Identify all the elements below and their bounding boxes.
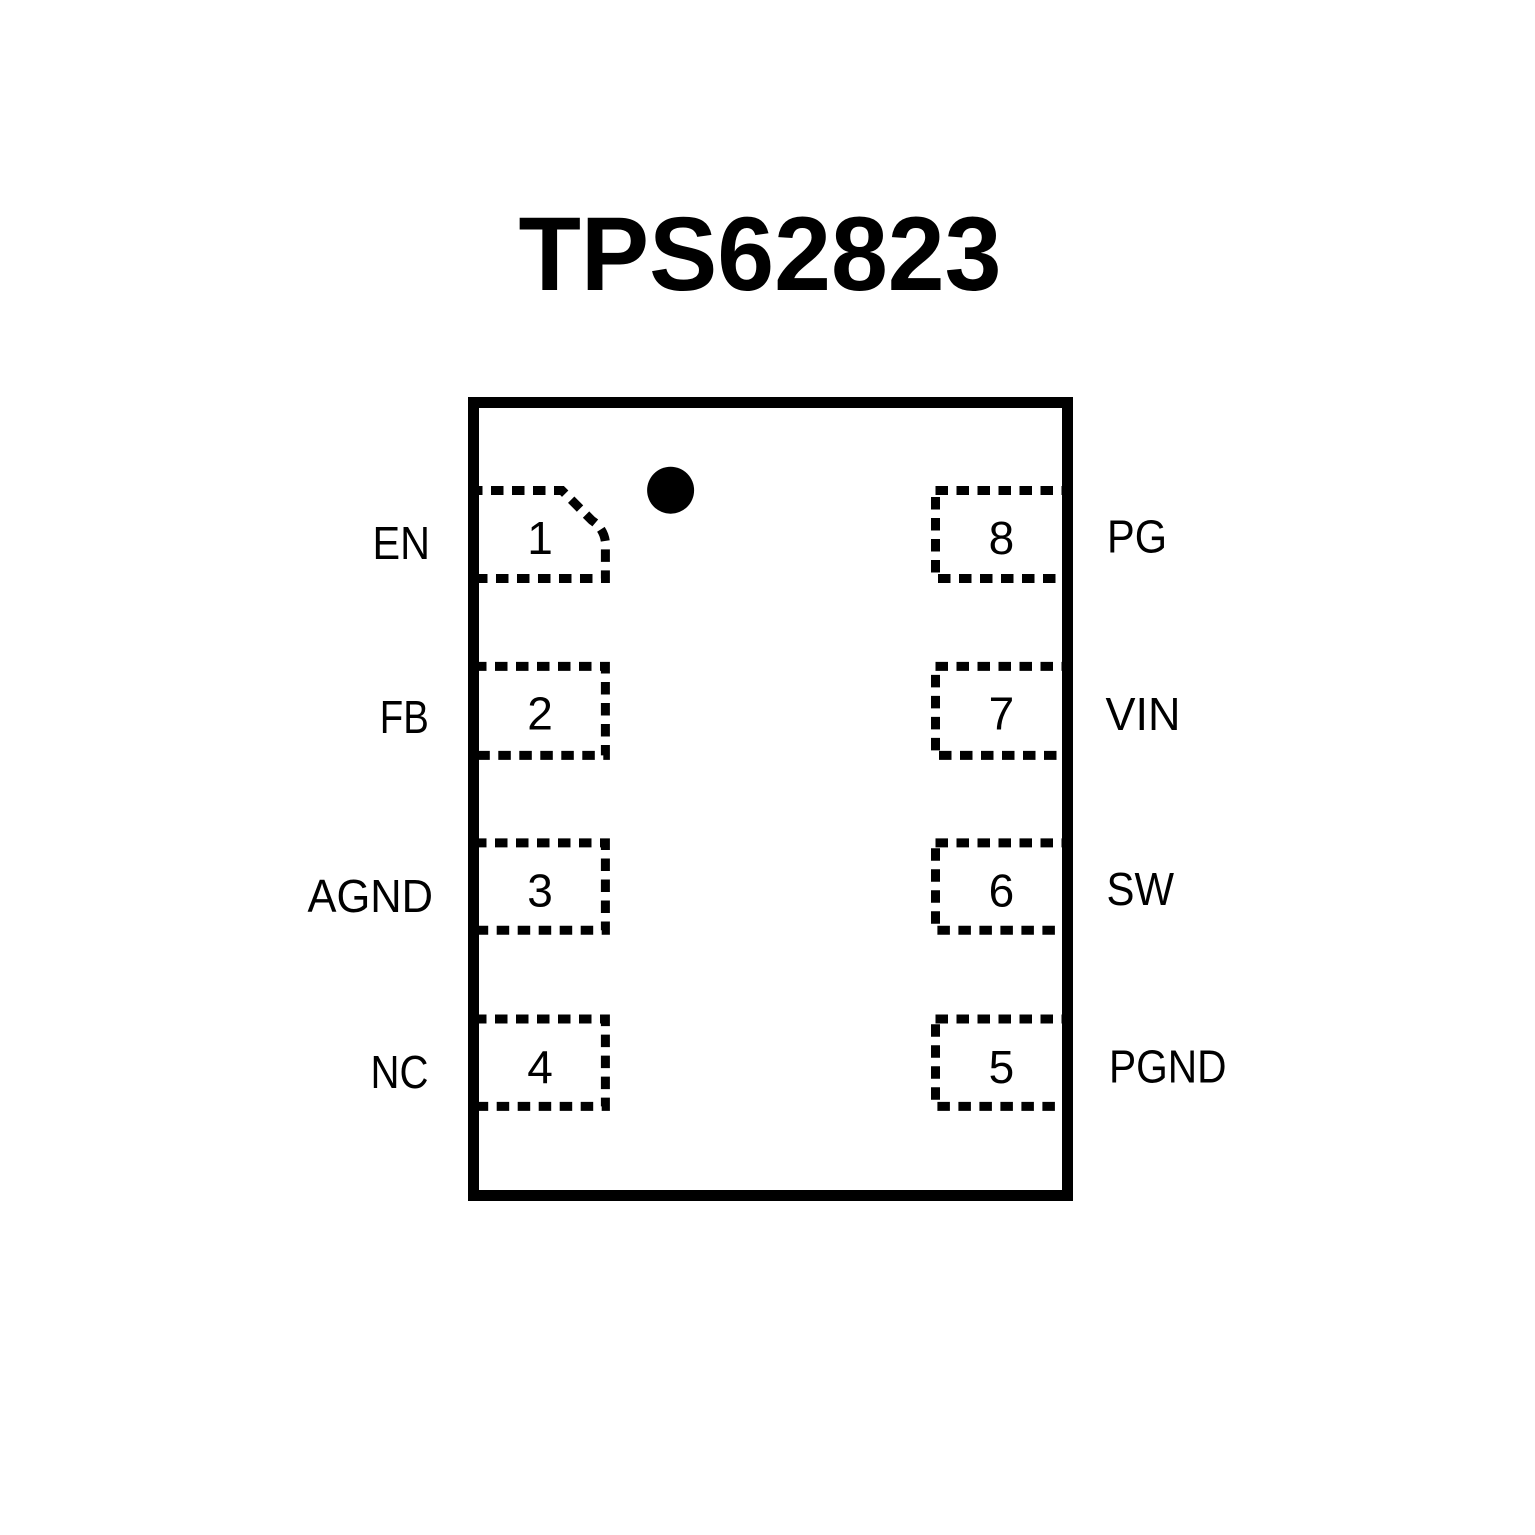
svg-text:NC: NC: [371, 1046, 429, 1098]
svg-text:5: 5: [989, 1041, 1015, 1093]
svg-text:VIN: VIN: [1106, 688, 1181, 740]
svg-text:FB: FB: [380, 691, 429, 743]
svg-text:1: 1: [527, 512, 553, 564]
svg-text:PG: PG: [1107, 511, 1167, 563]
svg-text:2: 2: [527, 688, 553, 740]
svg-text:TPS62823: TPS62823: [519, 196, 1002, 313]
svg-text:8: 8: [989, 512, 1015, 564]
svg-text:SW: SW: [1107, 863, 1175, 915]
svg-text:3: 3: [527, 865, 553, 917]
svg-text:EN: EN: [373, 517, 431, 569]
svg-text:7: 7: [989, 688, 1015, 740]
svg-text:6: 6: [989, 865, 1015, 917]
svg-text:4: 4: [527, 1041, 553, 1093]
svg-text:PGND: PGND: [1109, 1041, 1227, 1093]
svg-text:AGND: AGND: [308, 870, 434, 922]
